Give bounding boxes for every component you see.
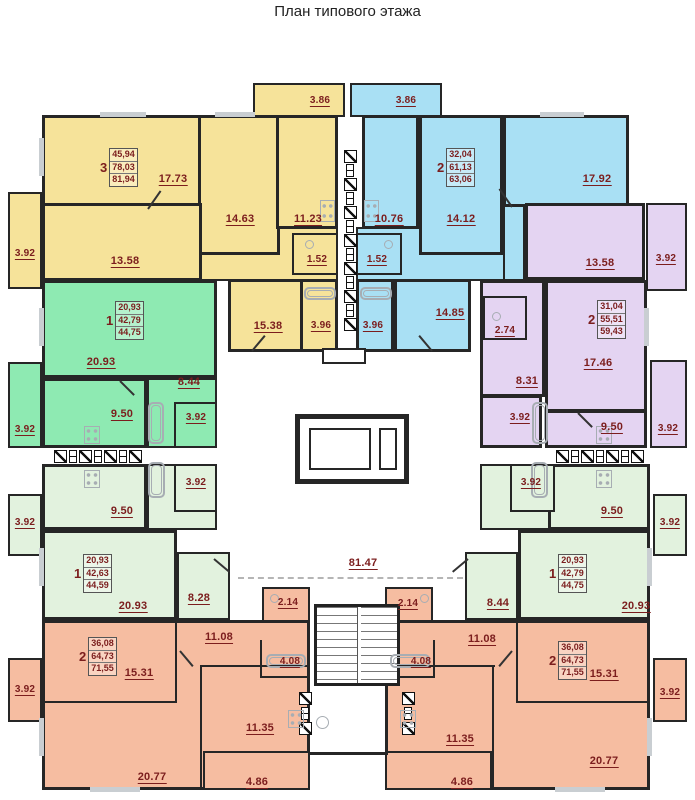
wall-segment [175,620,177,703]
apartment-area: 61,13 [447,162,474,175]
area-label: 3.86 [310,95,330,107]
window [39,138,44,176]
area-label: 11.35 [246,722,274,735]
vent-shaft [556,450,569,463]
window [644,308,649,346]
area-label-corridor: 81.47 [349,557,378,570]
toilet [384,240,393,249]
area-label: 15.38 [254,320,283,333]
area-label: 4.08 [411,656,431,668]
balcony-yellow-left [8,192,42,289]
area-label: 3.86 [396,95,416,107]
vent-shaft [581,450,594,463]
apartment-info-lightgreen-left: 1 20,9342,6344,59 [74,554,112,593]
area-label: 3.92 [186,477,206,489]
wall-segment [200,665,202,790]
room-yellow-bedroom2 [42,203,202,281]
window [39,308,44,346]
vent-shaft [346,192,354,205]
window [100,112,146,117]
vent-shaft [299,692,312,705]
living-area: 31,04 [598,301,625,314]
vent-shaft [344,178,357,191]
area-label: 3.92 [660,517,680,529]
vent-shaft [344,290,357,303]
window [215,112,255,117]
area-label: 20.93 [119,600,148,613]
wall-segment [260,640,262,678]
vent-shaft [346,220,354,233]
vent-shaft [621,450,629,463]
vent-shaft [346,164,354,177]
vent-shaft [129,450,142,463]
vent-shaft [631,450,644,463]
area-label: 3.96 [363,320,383,332]
area-label: 11.08 [205,631,233,644]
area-label: 2.14 [278,597,298,609]
area-label: 17.92 [583,173,612,186]
bathtub [148,462,165,498]
room-lgl-hall2 [177,552,230,620]
area-label: 3.92 [15,424,35,436]
apartment-info-purple: 2 31,0455,5159,43 [588,300,626,339]
apartment-info-salmon-right: 2 36,0864,7371,55 [549,641,587,680]
vent-shaft [402,692,415,705]
wall-segment [516,701,648,703]
apartment-info-salmon-left: 2 36,0864,7371,55 [79,637,117,676]
corridor-dashed-line [238,577,463,579]
apartment-info-green: 1 20,9342,7944,75 [106,301,144,340]
window [540,112,584,117]
area-label: 3.92 [660,687,680,699]
area-label: 14.63 [226,213,255,226]
living-area: 36,08 [559,642,586,655]
vent-shaft [344,234,357,247]
vent-shaft [346,248,354,261]
elevator-cab [309,428,371,470]
area-label: 8.44 [487,597,509,610]
area-label: 3.92 [510,412,530,424]
area-label: 15.31 [590,668,619,681]
rooms-count: 1 [549,566,556,581]
vent-shaft [79,450,92,463]
area-label: 8.31 [516,375,538,388]
window [39,548,44,586]
stove [288,710,304,728]
area-label: 1.52 [367,254,387,266]
living-area: 36,08 [89,638,116,651]
rooms-count: 1 [74,566,81,581]
area-label: 13.58 [111,255,140,268]
apartment-area: 42,79 [559,568,586,581]
room-yellow-bedroom [198,115,280,255]
total-area: 63,06 [447,174,474,186]
corridor-vestibule [322,348,366,364]
wall-segment [516,620,518,703]
vent-shaft [344,262,357,275]
apartment-area: 42,63 [84,568,111,581]
area-label: 20.77 [590,755,619,768]
vent-shaft [606,450,619,463]
apartment-area: 78,03 [110,162,137,175]
area-label: 14.85 [436,307,465,320]
floor-plan: План типового этажа [0,0,695,800]
vent-shaft [344,318,357,331]
room-green-bath [174,402,217,448]
area-label: 13.58 [586,257,615,270]
area-label: 2.74 [495,325,515,337]
vent-shaft [346,304,354,317]
window [647,548,652,586]
area-label: 11.23 [294,213,322,226]
vent-shaft [119,450,127,463]
stairs [314,604,400,686]
apartment-area: 55,51 [598,314,625,327]
total-area: 71,55 [559,667,586,679]
area-label: 8.44 [178,376,200,389]
vent-shaft [94,450,102,463]
wall-segment [492,665,494,790]
apartment-info-yellow: 3 45,9478,0381,94 [100,148,138,187]
vent-shaft [344,206,357,219]
vent-shaft [346,276,354,289]
page-title: План типового этажа [0,3,695,20]
rooms-count: 1 [106,313,113,328]
rooms-count: 2 [79,649,86,664]
total-area: 71,55 [89,663,116,675]
apartment-area: 64,73 [89,651,116,664]
area-label: 3.92 [186,412,206,424]
living-area: 20,93 [116,302,143,315]
area-label: 3.92 [15,684,35,696]
area-label: 20.93 [87,356,116,369]
apartment-info-lightgreen-right: 1 20,9342,7944,75 [549,554,587,593]
bathtub [304,287,336,300]
total-area: 59,43 [598,326,625,338]
stove [320,200,335,222]
area-label: 3.96 [311,320,331,332]
vent-shaft [104,450,117,463]
loggia-yellow-top [253,83,345,117]
total-area: 44,75 [116,327,143,339]
sink [420,594,429,603]
vent-shaft [344,150,357,163]
living-area: 20,93 [559,555,586,568]
area-label: 2.14 [398,598,418,610]
garbage-chute [316,716,329,729]
apartment-area: 42,79 [116,315,143,328]
total-area: 44,59 [84,580,111,592]
wall-segment [260,676,310,678]
area-label: 9.50 [601,505,623,518]
window [555,787,605,792]
wall-segment [433,640,435,678]
rooms-count: 2 [549,653,556,668]
area-label: 9.50 [111,408,133,421]
rooms-count: 3 [100,160,107,175]
area-label: 4.86 [246,776,268,789]
stove [84,426,100,444]
total-area: 44,75 [559,580,586,592]
wall-segment [310,752,388,755]
area-label: 17.73 [159,173,188,186]
area-label: 14.12 [447,213,476,226]
stairs-divider [357,607,361,683]
bathtub [148,402,164,444]
vent-shaft [69,450,77,463]
bathtub [532,402,548,444]
window [39,718,44,756]
area-label: 3.92 [15,248,35,260]
loggia-sr [385,751,492,790]
area-label: 8.28 [188,592,210,605]
room-blue-living [503,115,629,207]
area-label: 11.08 [468,633,496,646]
room-blue-corridor [503,205,525,281]
window [647,718,652,756]
area-label: 9.50 [601,421,623,434]
elevator-counterweight [379,428,397,470]
toilet [492,312,501,321]
living-area: 32,04 [447,149,474,162]
area-label: 3.92 [521,477,541,489]
area-label: 9.50 [111,505,133,518]
living-area: 45,94 [110,149,137,162]
wall-segment [44,701,177,703]
area-label: 1.52 [307,254,327,266]
area-label: 3.92 [15,517,35,529]
apartment-area: 64,73 [559,655,586,668]
apartment-info-blue: 2 32,0461,1363,06 [437,148,475,187]
balcony-purple-1 [646,203,687,291]
area-label: 3.92 [656,253,676,265]
living-area: 20,93 [84,555,111,568]
area-label: 4.08 [280,656,300,668]
area-label: 3.92 [658,423,678,435]
stove [400,710,416,728]
area-label: 20.77 [138,771,167,784]
toilet [305,240,314,249]
bathtub [360,287,392,300]
vent-shaft [596,450,604,463]
vent-shaft [54,450,67,463]
vent-shaft [571,450,579,463]
area-label: 10.76 [375,213,404,226]
area-label: 17.46 [584,357,613,370]
window [90,787,140,792]
area-label: 4.86 [451,776,473,789]
total-area: 81,94 [110,174,137,186]
rooms-count: 2 [588,312,595,327]
area-label: 15.31 [125,667,154,680]
rooms-count: 2 [437,160,444,175]
area-label: 11.35 [446,733,474,746]
stove [84,470,100,488]
stove [596,470,612,488]
area-label: 20.93 [622,600,651,613]
room-yellow-hallway [228,279,304,352]
